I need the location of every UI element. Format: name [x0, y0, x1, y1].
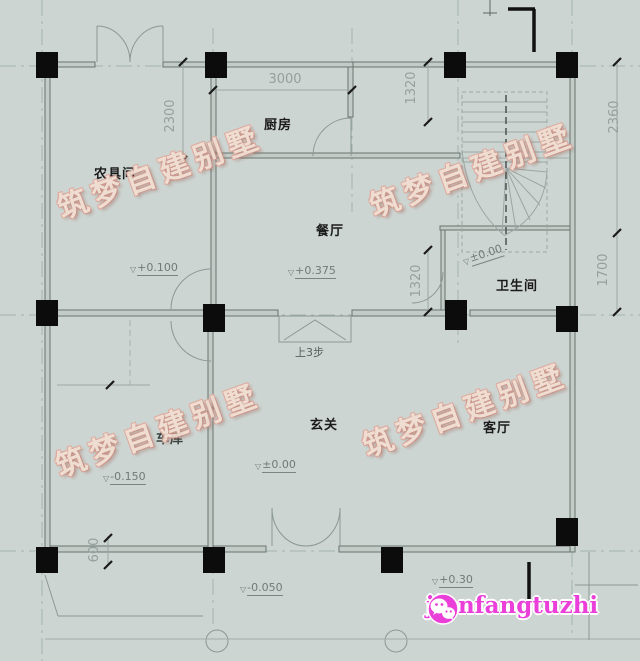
elevation-porch: ▽+0.30 — [432, 573, 473, 586]
main-double-door — [272, 508, 340, 546]
top-grid-tick — [483, 0, 497, 16]
dim-1320-mid: 1320 — [409, 251, 425, 311]
column-bubbles — [206, 630, 407, 652]
level-triangle-icon: ▽ — [255, 462, 261, 471]
floor-plan: 农具间 厨房 餐厅 卫生间 玄关 客厅 车库 上3步 3000 2300 132… — [0, 0, 640, 661]
dim-1700: 1700 — [596, 240, 612, 300]
level-triangle-icon: ▽ — [432, 577, 438, 586]
dim-2300: 2300 — [163, 86, 179, 146]
steps-note: 上3步 — [295, 344, 324, 360]
room-label-kitchen: 厨房 — [264, 114, 292, 133]
level-triangle-icon: ▽ — [103, 474, 109, 483]
elevation-garage: ▽-0.150 — [103, 470, 146, 483]
top-right-corner-mark — [508, 9, 535, 52]
level-triangle-icon: ▽ — [240, 585, 246, 594]
dim-1320-top: 1320 — [404, 58, 420, 118]
elevation-dining: ▽+0.375 — [288, 264, 336, 277]
dim-2360: 2360 — [607, 87, 623, 147]
kitchen-door — [313, 118, 351, 156]
dim-600: 600 — [87, 520, 103, 580]
wechat-icon — [426, 592, 460, 626]
level-triangle-icon: ▽ — [288, 268, 294, 277]
elevation-farm-tool: ▽+0.100 — [130, 261, 178, 274]
room-label-dining: 餐厅 — [316, 220, 344, 239]
dim-3000: 3000 — [255, 72, 315, 87]
room-label-foyer: 玄关 — [310, 414, 338, 433]
steps-symbol — [279, 316, 351, 342]
room-label-bathroom: 卫生间 — [496, 275, 538, 294]
elevation-foyer: ▽±0.00 — [255, 458, 296, 471]
site-logo: jianfangtuzhi — [426, 592, 598, 619]
section-marks — [508, 9, 535, 600]
elevation-driveway: ▽-0.050 — [240, 581, 283, 594]
top-double-door — [97, 26, 163, 62]
garage-ramp — [45, 575, 203, 616]
level-triangle-icon: ▽ — [130, 265, 136, 274]
